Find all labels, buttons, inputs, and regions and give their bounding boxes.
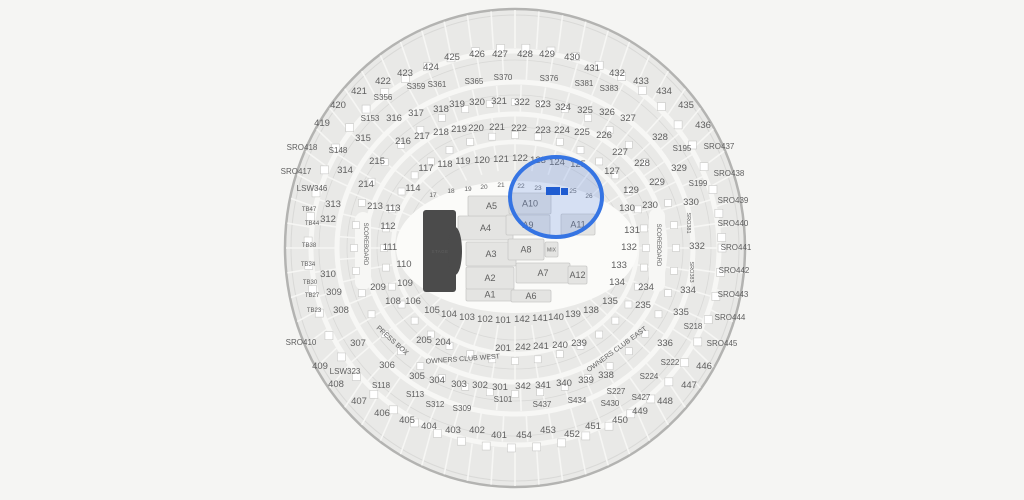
section-label-135[interactable]: 135 [602, 296, 618, 307]
section-label-407[interactable]: 407 [351, 396, 367, 407]
section-label-424[interactable]: 424 [423, 62, 439, 73]
section-label-133[interactable]: 133 [611, 260, 627, 271]
section-label-241[interactable]: 241 [533, 341, 549, 352]
section-label-sro442[interactable]: SRO442 [719, 266, 750, 275]
section-label-tb34[interactable]: TB34 [301, 262, 316, 268]
section-label-s430[interactable]: S430 [601, 399, 620, 408]
selection-overlay [510, 157, 602, 237]
section-label-105[interactable]: 105 [424, 305, 440, 316]
section-label-340[interactable]: 340 [556, 378, 572, 389]
section-label-433[interactable]: 433 [633, 76, 649, 87]
floor-section-label: A12 [569, 270, 585, 280]
section-label-335[interactable]: 335 [673, 307, 689, 318]
floor-section-A2[interactable]: A2 [466, 267, 514, 289]
tunnel-marker [411, 172, 418, 179]
section-label-134[interactable]: 134 [609, 277, 625, 288]
section-label-229[interactable]: 229 [649, 177, 665, 188]
section-label-s101[interactable]: S101 [494, 395, 513, 404]
section-label-tb30[interactable]: TB30 [303, 280, 318, 286]
section-label-lsw323[interactable]: LSW323 [330, 367, 361, 376]
section-label-120[interactable]: 120 [474, 155, 490, 166]
tunnel-marker [673, 245, 680, 252]
section-label-s148[interactable]: S148 [329, 146, 348, 155]
tunnel-marker [665, 378, 673, 386]
floor-section-MIX[interactable]: MIX [545, 242, 558, 257]
floor-section-label: A5 [486, 201, 497, 211]
section-label-204[interactable]: 204 [435, 337, 451, 348]
section-label-103[interactable]: 103 [459, 312, 475, 323]
section-label-313[interactable]: 313 [325, 199, 341, 210]
section-label-s361[interactable]: S361 [428, 80, 447, 89]
section-label-323[interactable]: 323 [535, 99, 551, 110]
tunnel-marker [351, 245, 358, 252]
floor-section-A4[interactable]: A4 [458, 216, 513, 240]
section-label-434[interactable]: 434 [656, 86, 672, 97]
section-label-s309[interactable]: S309 [453, 404, 472, 413]
tunnel-marker [665, 290, 672, 297]
section-label-s312[interactable]: S312 [426, 400, 445, 409]
section-label-325[interactable]: 325 [577, 105, 593, 116]
section-label-218[interactable]: 218 [433, 127, 449, 138]
section-label-401[interactable]: 401 [491, 430, 507, 441]
tunnel-marker [582, 432, 590, 440]
tunnel-marker [362, 105, 370, 113]
stage-label: STAGE [432, 249, 449, 254]
selected-seat-marker[interactable] [546, 187, 560, 195]
section-label-s376[interactable]: S376 [540, 74, 559, 83]
floor-section-label: A3 [485, 249, 496, 259]
section-label-s370[interactable]: S370 [494, 73, 513, 82]
section-label-425[interactable]: 425 [444, 52, 460, 63]
section-label-tb23[interactable]: TB23 [307, 308, 322, 314]
section-label-17[interactable]: 17 [429, 192, 437, 199]
section-label-305[interactable]: 305 [409, 371, 425, 382]
section-label-tb38[interactable]: TB38 [302, 243, 317, 249]
tunnel-marker [533, 443, 541, 451]
section-label-140[interactable]: 140 [548, 312, 564, 323]
section-label-230[interactable]: 230 [642, 200, 658, 211]
section-label-sro440[interactable]: SRO440 [718, 219, 749, 228]
section-label-106[interactable]: 106 [405, 296, 421, 307]
section-label-318[interactable]: 318 [433, 104, 449, 115]
tunnel-marker [489, 133, 496, 140]
tunnel-marker [352, 267, 359, 274]
section-label-s383[interactable]: S383 [600, 84, 619, 93]
tunnel-marker [534, 356, 541, 363]
floor-section-label: MIX [547, 247, 557, 253]
section-label-s359[interactable]: S359 [407, 82, 426, 91]
section-label-s427[interactable]: S427 [632, 393, 651, 402]
section-label-306[interactable]: 306 [379, 360, 395, 371]
section-label-224[interactable]: 224 [554, 125, 570, 136]
section-label-20[interactable]: 20 [480, 184, 488, 191]
section-label-451[interactable]: 451 [585, 421, 601, 432]
section-label-129[interactable]: 129 [623, 185, 639, 196]
section-label-304[interactable]: 304 [429, 375, 445, 386]
section-label-332[interactable]: 332 [689, 241, 705, 252]
section-label-142[interactable]: 142 [514, 314, 530, 325]
section-label-319[interactable]: 319 [449, 99, 465, 110]
tunnel-marker [671, 267, 678, 274]
tunnel-marker [370, 390, 378, 398]
section-label-301[interactable]: 301 [492, 382, 508, 393]
tunnel-marker [577, 147, 584, 154]
section-label-s437[interactable]: S437 [533, 400, 552, 409]
section-label-403[interactable]: 403 [445, 425, 461, 436]
section-label-435[interactable]: 435 [678, 100, 694, 111]
section-label-110[interactable]: 110 [396, 259, 411, 270]
tunnel-marker [467, 138, 474, 145]
floor-section-label: A4 [480, 223, 491, 233]
tunnel-marker [358, 199, 365, 206]
section-label-scoreboard[interactable]: SCOREBOARD [655, 224, 661, 267]
section-label-s222[interactable]: S222 [661, 358, 680, 367]
section-label-316[interactable]: 316 [386, 113, 402, 124]
section-label-409[interactable]: 409 [312, 361, 328, 372]
floor-section-A12[interactable]: A12 [568, 266, 587, 284]
section-label-s118[interactable]: S118 [372, 381, 391, 390]
section-label-336[interactable]: 336 [657, 338, 673, 349]
section-label-327[interactable]: 327 [620, 113, 636, 124]
tunnel-marker [368, 311, 375, 318]
section-label-242[interactable]: 242 [515, 342, 531, 353]
floor-section-A6[interactable]: A6 [511, 290, 551, 302]
floor-section-label: A7 [537, 268, 548, 278]
section-label-sro410[interactable]: SRO410 [286, 338, 317, 347]
section-label-s434[interactable]: S434 [568, 396, 587, 405]
section-label-315[interactable]: 315 [355, 133, 371, 144]
section-label-s224[interactable]: S224 [640, 372, 659, 381]
section-label-405[interactable]: 405 [399, 415, 415, 426]
tunnel-marker [643, 245, 650, 252]
floor-section-label: A8 [520, 245, 531, 255]
tunnel-marker [665, 199, 672, 206]
tunnel-marker [635, 206, 642, 213]
section-label-119[interactable]: 119 [455, 156, 470, 167]
section-label-314[interactable]: 314 [337, 165, 353, 176]
section-label-339[interactable]: 339 [578, 375, 594, 386]
section-label-102[interactable]: 102 [477, 314, 493, 325]
page: { "map": { "background": "#f5f5f3", "sec… [0, 0, 1024, 500]
section-label-s113[interactable]: S113 [406, 390, 425, 399]
section-label-130[interactable]: 130 [619, 203, 635, 214]
section-label-109[interactable]: 109 [397, 278, 413, 289]
section-label-320[interactable]: 320 [469, 97, 485, 108]
section-label-454[interactable]: 454 [516, 430, 532, 441]
section-label-sro418[interactable]: SRO418 [287, 143, 318, 152]
section-label-112[interactable]: 112 [380, 221, 395, 232]
section-label-s356[interactable]: S356 [374, 93, 393, 102]
tunnel-marker [641, 264, 648, 271]
section-label-sro383[interactable]: SRO383 [688, 261, 694, 282]
tunnel-marker [655, 311, 662, 318]
tunnel-marker [596, 158, 603, 165]
tunnel-marker [625, 348, 632, 355]
section-label-s153[interactable]: S153 [361, 114, 380, 123]
section-label-239[interactable]: 239 [571, 338, 587, 349]
tunnel-marker [320, 166, 328, 174]
floor-section-label: A6 [525, 291, 536, 301]
section-label-s199[interactable]: S199 [689, 179, 708, 188]
section-label-234[interactable]: 234 [638, 282, 654, 293]
section-label-446[interactable]: 446 [696, 361, 712, 372]
section-label-127[interactable]: 127 [604, 166, 620, 177]
section-label-225[interactable]: 225 [574, 127, 590, 138]
tunnel-marker [657, 103, 665, 111]
tunnel-marker [556, 351, 563, 358]
section-label-138[interactable]: 138 [583, 305, 599, 316]
section-label-219[interactable]: 219 [451, 124, 467, 135]
section-label-329[interactable]: 329 [671, 163, 687, 174]
section-label-450[interactable]: 450 [612, 415, 628, 426]
tunnel-marker [398, 188, 405, 195]
tunnel-marker [674, 121, 682, 129]
section-label-118[interactable]: 118 [437, 159, 452, 170]
section-label-427[interactable]: 427 [492, 49, 508, 60]
tunnel-marker [358, 290, 365, 297]
tunnel-marker [641, 225, 648, 232]
section-label-sro444[interactable]: SRO444 [715, 313, 746, 322]
section-label-317[interactable]: 317 [408, 108, 424, 119]
tunnel-marker [638, 86, 646, 94]
tunnel-marker [512, 358, 519, 365]
section-label-402[interactable]: 402 [469, 425, 485, 436]
tunnel-marker [482, 442, 490, 450]
section-label-449[interactable]: 449 [632, 406, 648, 417]
section-label-426[interactable]: 426 [469, 49, 485, 60]
section-label-s227[interactable]: S227 [607, 387, 626, 396]
seat-map-container: A1A2A3A4A5A6A7A8A9A10A11A12MIX STAGE 101… [0, 0, 1024, 500]
section-label-452[interactable]: 452 [564, 429, 580, 440]
section-label-419[interactable]: 419 [314, 118, 330, 129]
section-label-431[interactable]: 431 [584, 63, 600, 74]
section-label-408[interactable]: 408 [328, 379, 344, 390]
section-label-sro439[interactable]: SRO439 [718, 196, 749, 205]
tunnel-marker [389, 406, 397, 414]
section-label-302[interactable]: 302 [472, 380, 488, 391]
section-label-436[interactable]: 436 [695, 120, 711, 131]
tunnel-marker [417, 363, 424, 370]
section-label-113[interactable]: 113 [385, 203, 400, 214]
section-label-307[interactable]: 307 [350, 338, 366, 349]
section-label-432[interactable]: 432 [609, 68, 625, 79]
section-label-111[interactable]: 111 [383, 242, 397, 253]
selection-highlight-ring [510, 157, 602, 237]
tunnel-marker [681, 359, 689, 367]
tunnel-marker [346, 124, 354, 132]
floor-section-label: A1 [484, 290, 495, 300]
section-label-308[interactable]: 308 [333, 305, 349, 316]
tunnel-marker [446, 147, 453, 154]
tunnel-marker [700, 163, 708, 171]
section-label-228[interactable]: 228 [634, 158, 650, 169]
section-label-215[interactable]: 215 [369, 156, 385, 167]
section-label-tb44[interactable]: TB44 [305, 221, 320, 227]
tunnel-marker [507, 444, 515, 452]
section-label-sro443[interactable]: SRO443 [718, 290, 749, 299]
tunnel-marker [625, 301, 632, 308]
section-label-223[interactable]: 223 [535, 125, 551, 136]
tunnel-marker [612, 317, 619, 324]
floor-section-A5[interactable]: A5 [468, 196, 515, 216]
tunnel-marker [388, 283, 395, 290]
section-label-240[interactable]: 240 [552, 340, 568, 351]
tunnel-marker [558, 439, 566, 447]
section-label-420[interactable]: 420 [330, 100, 346, 111]
section-label-326[interactable]: 326 [599, 107, 615, 118]
tunnel-marker [718, 234, 726, 242]
section-label-108[interactable]: 108 [385, 296, 401, 307]
section-label-s195[interactable]: S195 [673, 144, 692, 153]
section-label-lsw346[interactable]: LSW346 [297, 184, 328, 193]
section-label-322[interactable]: 322 [514, 97, 530, 108]
section-label-21[interactable]: 21 [497, 182, 505, 189]
section-label-324[interactable]: 324 [555, 102, 571, 113]
section-label-227[interactable]: 227 [612, 147, 628, 158]
section-label-423[interactable]: 423 [397, 68, 413, 79]
section-label-220[interactable]: 220 [468, 123, 484, 134]
tunnel-marker [411, 317, 418, 324]
section-label-303[interactable]: 303 [451, 379, 467, 390]
tunnel-marker [671, 222, 678, 229]
section-label-226[interactable]: 226 [596, 130, 612, 141]
section-label-sro381[interactable]: SRO381 [685, 212, 691, 233]
section-label-321[interactable]: 321 [491, 96, 507, 107]
section-label-429[interactable]: 429 [539, 49, 555, 60]
section-label-sro437[interactable]: SRO437 [704, 142, 735, 151]
section-label-216[interactable]: 216 [395, 136, 411, 147]
section-label-132[interactable]: 132 [621, 242, 637, 253]
section-label-428[interactable]: 428 [517, 49, 533, 60]
floor-section-label: A2 [484, 273, 495, 283]
section-label-421[interactable]: 421 [351, 86, 367, 97]
section-label-117[interactable]: 117 [418, 163, 433, 174]
section-label-18[interactable]: 18 [447, 188, 455, 195]
section-label-sro445[interactable]: SRO445 [707, 339, 738, 348]
section-label-422[interactable]: 422 [375, 76, 391, 87]
section-label-310[interactable]: 310 [320, 269, 336, 280]
tunnel-marker [307, 213, 315, 221]
section-label-101[interactable]: 101 [495, 315, 511, 326]
section-label-s218[interactable]: S218 [684, 322, 703, 331]
tunnel-marker [325, 332, 333, 340]
section-label-342[interactable]: 342 [515, 381, 531, 392]
section-label-122[interactable]: 122 [512, 153, 528, 164]
section-label-tb47[interactable]: TB47 [302, 207, 317, 213]
section-label-s381[interactable]: S381 [575, 79, 594, 88]
section-label-330[interactable]: 330 [683, 197, 699, 208]
section-label-sro441[interactable]: SRO441 [721, 243, 752, 252]
section-label-s365[interactable]: S365 [465, 77, 484, 86]
section-label-448[interactable]: 448 [657, 396, 673, 407]
section-label-222[interactable]: 222 [511, 123, 527, 134]
section-label-213[interactable]: 213 [367, 201, 383, 212]
section-label-235[interactable]: 235 [635, 300, 651, 311]
tunnel-marker [694, 338, 702, 346]
section-label-334[interactable]: 334 [680, 285, 696, 296]
tunnel-marker [715, 209, 723, 217]
section-label-214[interactable]: 214 [358, 179, 374, 190]
floor-section-A8[interactable]: A8 [508, 239, 544, 260]
section-label-scoreboard[interactable]: SCOREBOARD [362, 223, 368, 266]
section-label-404[interactable]: 404 [421, 421, 437, 432]
section-label-131[interactable]: 131 [624, 225, 640, 236]
section-label-328[interactable]: 328 [652, 132, 668, 143]
tunnel-marker [457, 437, 465, 445]
section-label-341[interactable]: 341 [535, 380, 551, 391]
tunnel-marker [704, 316, 712, 324]
floor-section-A7[interactable]: A7 [516, 263, 570, 283]
section-label-19[interactable]: 19 [464, 186, 472, 193]
section-label-201[interactable]: 201 [495, 343, 511, 354]
section-label-205[interactable]: 205 [416, 335, 432, 346]
tunnel-marker [352, 222, 359, 229]
section-label-121[interactable]: 121 [493, 154, 509, 165]
tunnel-marker [556, 138, 563, 145]
section-label-sro417[interactable]: SRO417 [281, 167, 312, 176]
section-label-141[interactable]: 141 [532, 313, 548, 324]
section-label-338[interactable]: 338 [598, 370, 614, 381]
tunnel-marker [382, 264, 389, 271]
section-label-tb27[interactable]: TB27 [305, 293, 320, 299]
section-label-406[interactable]: 406 [374, 408, 390, 419]
section-label-114[interactable]: 114 [405, 183, 420, 194]
section-label-430[interactable]: 430 [564, 52, 580, 63]
section-label-453[interactable]: 453 [540, 425, 556, 436]
section-label-sro438[interactable]: SRO438 [714, 169, 745, 178]
tunnel-marker [337, 353, 345, 361]
section-label-312[interactable]: 312 [320, 214, 336, 225]
tunnel-marker [438, 114, 445, 121]
section-label-221[interactable]: 221 [489, 122, 505, 133]
tunnel-marker [606, 363, 613, 370]
section-label-447[interactable]: 447 [681, 380, 697, 391]
seat-map[interactable]: A1A2A3A4A5A6A7A8A9A10A11A12MIX STAGE 101… [0, 0, 1024, 500]
section-label-209[interactable]: 209 [370, 282, 386, 293]
section-label-309[interactable]: 309 [326, 287, 342, 298]
floor-section-A1[interactable]: A1 [466, 288, 514, 301]
section-label-104[interactable]: 104 [441, 309, 457, 320]
selected-seat-marker[interactable] [561, 188, 568, 195]
section-label-217[interactable]: 217 [414, 131, 430, 142]
section-label-139[interactable]: 139 [565, 309, 581, 320]
tunnel-marker [709, 186, 717, 194]
tunnel-marker [596, 331, 603, 338]
